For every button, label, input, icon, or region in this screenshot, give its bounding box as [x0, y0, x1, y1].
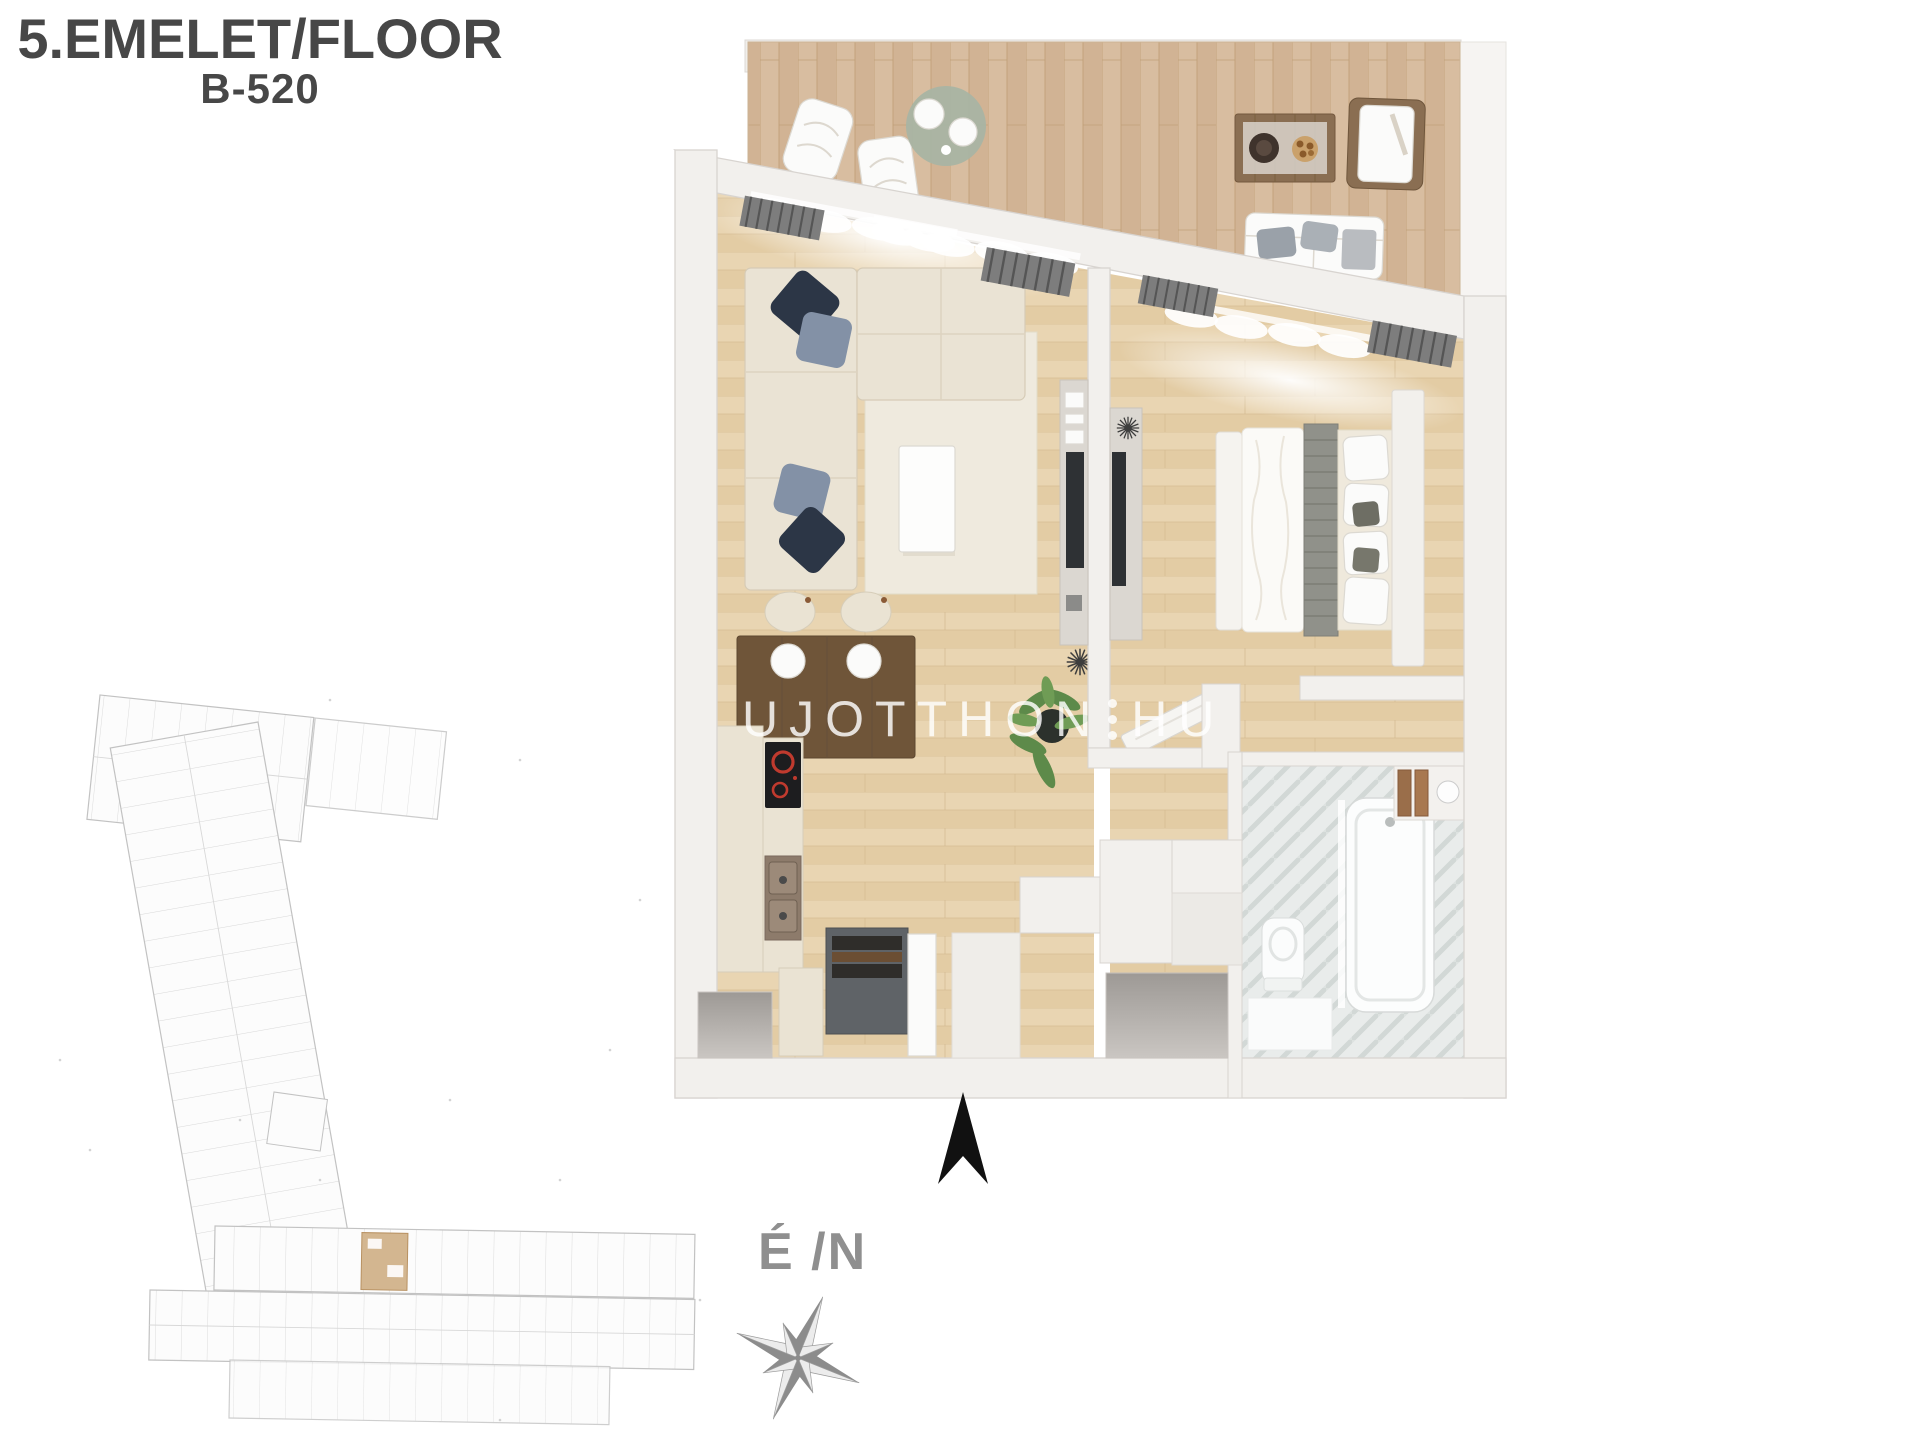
plate [771, 644, 805, 678]
entrance-door-niche [1106, 973, 1228, 1058]
compass-rose-icon [712, 1272, 884, 1440]
entry-volume [1100, 840, 1172, 963]
entry-panel [908, 934, 936, 1056]
page-title: 5.EMELET/FLOOR [4, 10, 516, 67]
watermark-dots-icon [1108, 699, 1117, 740]
terrace-coffee-table [1235, 114, 1335, 182]
pouf [914, 99, 944, 129]
sofa-pillow [1256, 226, 1297, 260]
entry-volume [1020, 877, 1110, 933]
tv-screen [1066, 452, 1084, 568]
watermark-right: HU [1131, 690, 1225, 748]
dining-chair [841, 592, 891, 632]
entry-volume [1172, 840, 1242, 893]
wall-niche [698, 992, 772, 1058]
snack-plate [1292, 136, 1318, 162]
bath-mat [1248, 998, 1332, 1050]
sofa-throw [1341, 229, 1376, 270]
pouf [949, 118, 977, 146]
speaker [1066, 595, 1082, 611]
entry-floor-patch [952, 933, 1020, 1058]
title-block: 5.EMELET/FLOOR B-520 [4, 10, 516, 111]
sofa-pillow [1300, 220, 1340, 253]
dining-chair [765, 592, 815, 632]
bathtub [1346, 798, 1434, 1012]
west-wall [675, 150, 717, 1098]
compass-label: É /N [758, 1222, 867, 1282]
bed-pillow [1343, 435, 1390, 482]
partition-wall [1088, 268, 1110, 748]
sofa-pillow [794, 310, 853, 369]
vanity [1394, 766, 1464, 820]
bed-bench [1216, 432, 1242, 630]
kitchen [715, 726, 803, 972]
headboard [1392, 390, 1424, 666]
bathroom-north-wall [1242, 752, 1464, 766]
bed-pillow [1342, 577, 1389, 626]
north-arrow-icon [938, 1092, 988, 1184]
coffee-table [899, 446, 955, 556]
double-bed [1216, 390, 1424, 666]
unit-code: B-520 [4, 67, 516, 111]
floor-plan-sheet: 5.EMELET/FLOOR B-520 UJOTTHON HU É /N [0, 0, 1920, 1440]
bedroom-south-wall [1300, 676, 1464, 700]
decor-starburst [1117, 417, 1139, 439]
accent-cushion [1352, 501, 1380, 528]
toilet [1262, 918, 1304, 991]
entry-step [1172, 893, 1242, 965]
terrace-armchair [1346, 98, 1425, 191]
watermark-left: UJOTTHON [742, 690, 1102, 748]
tv-screen [1112, 452, 1126, 586]
south-wall [675, 1058, 1506, 1098]
site-plan-long-wing [214, 1226, 695, 1298]
kitchen-cabinet [715, 726, 763, 972]
watermark: UJOTTHON HU [742, 690, 1225, 748]
plate [847, 644, 881, 678]
east-wall [1464, 296, 1506, 1098]
terrace-side-wall [1460, 42, 1506, 296]
site-plan [59, 695, 702, 1425]
terrace-rug [906, 86, 986, 166]
accent-cushion [1352, 547, 1380, 573]
shoe-cabinet [779, 968, 823, 1056]
